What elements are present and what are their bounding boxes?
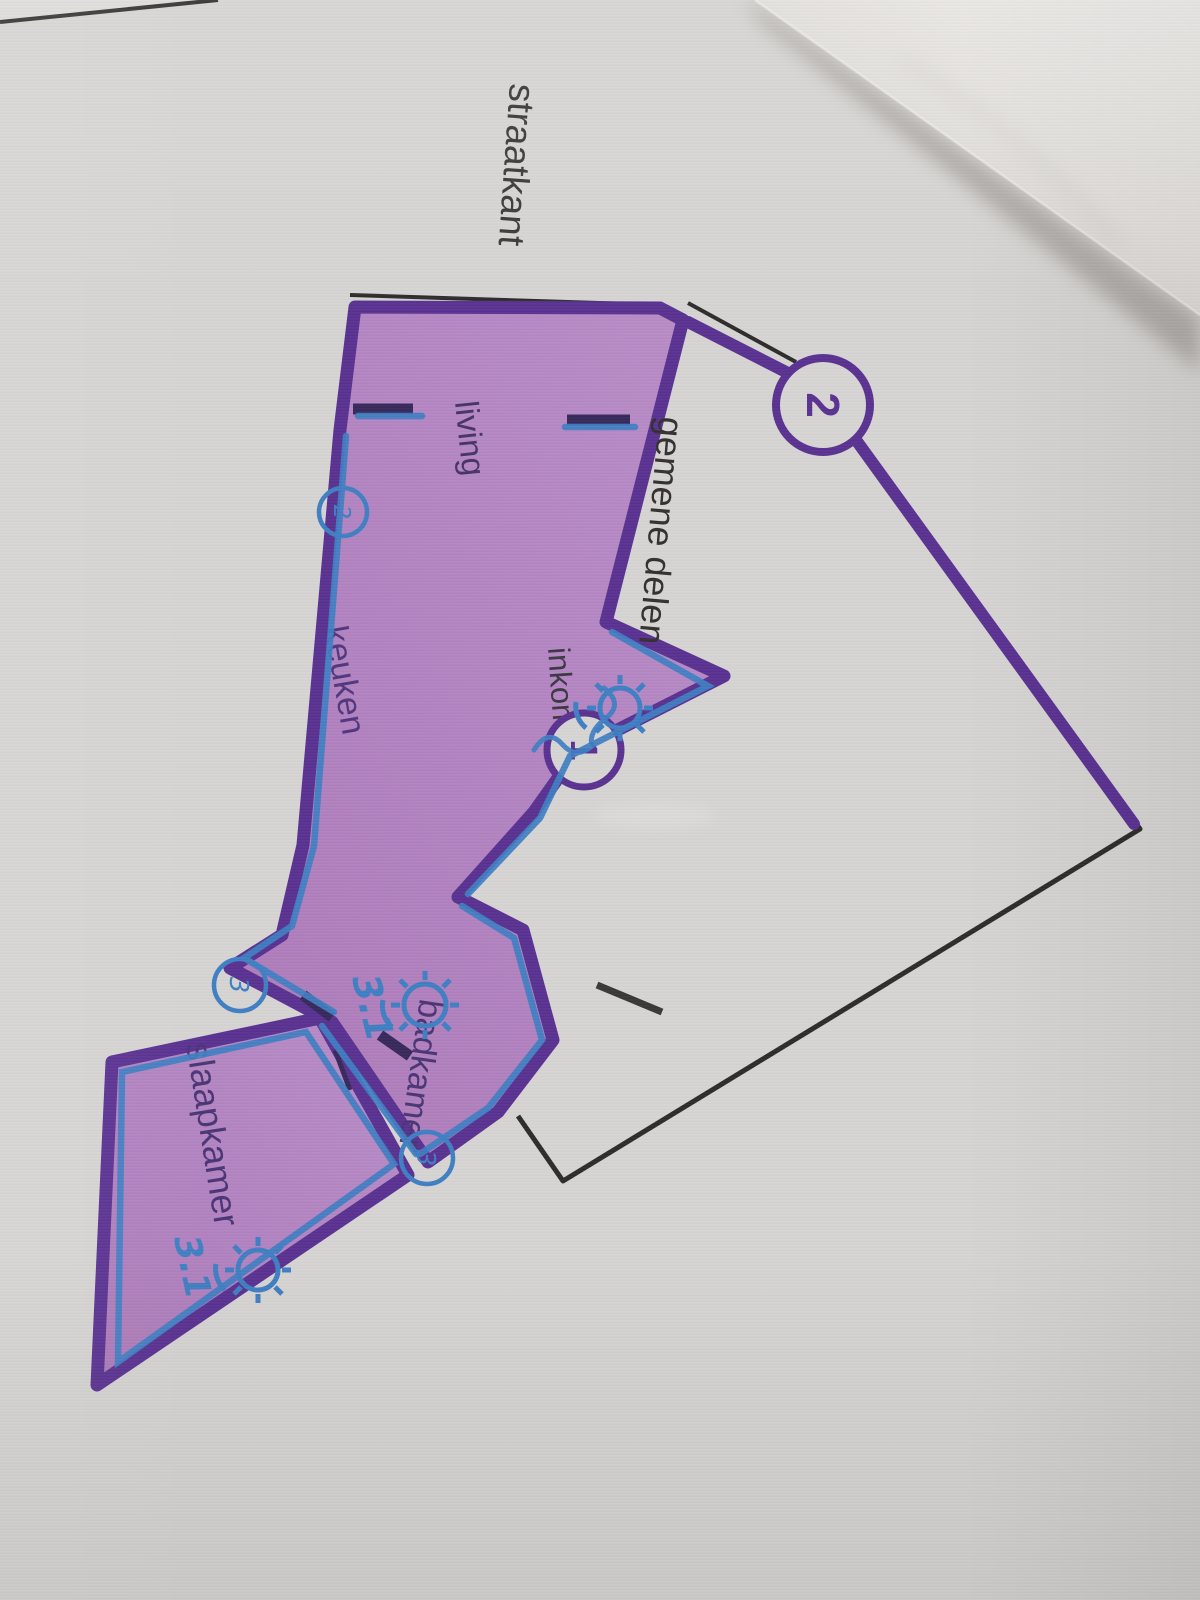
svg-text:2: 2 [328, 505, 354, 520]
common-area-purple-boundary [688, 322, 1134, 824]
marker-2-digit: 2 [797, 392, 849, 418]
svg-text:3: 3 [410, 1150, 440, 1167]
floorplan-drawing: straatkant gemene delen living keuken in… [0, 0, 1200, 1600]
photo-of-floorplan-page: straatkant gemene delen living keuken in… [0, 0, 1200, 1600]
svg-text:3: 3 [223, 977, 253, 994]
label-straatkant: straatkant [491, 82, 543, 248]
floorplan-document: straatkant gemene delen living keuken in… [0, 0, 1200, 1600]
marker-2: 2 [776, 358, 870, 452]
label-living: living [448, 399, 493, 478]
